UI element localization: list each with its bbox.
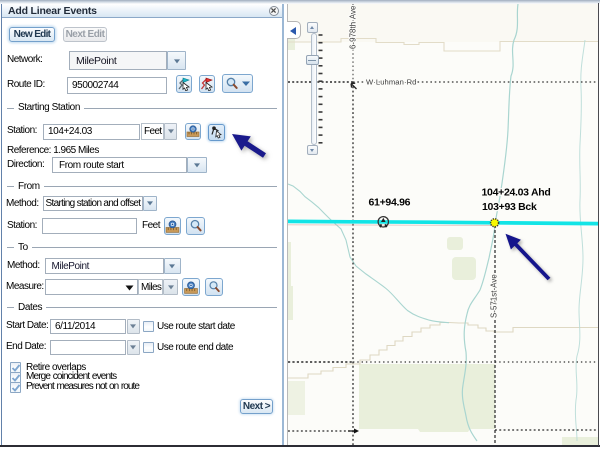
svg-text:103+93 Bck: 103+93 Bck [482, 201, 537, 213]
svg-text:61+94.96: 61+94.96 [369, 197, 411, 209]
svg-text:104+24.03 Ahd: 104+24.03 Ahd [482, 187, 551, 199]
svg-text:6-978th·Ave: 6-978th·Ave [349, 6, 358, 49]
svg-text:S-571st-Ave: S-571st-Ave [490, 274, 499, 318]
svg-text:W·Luhman·Rd: W·Luhman·Rd [366, 78, 416, 87]
